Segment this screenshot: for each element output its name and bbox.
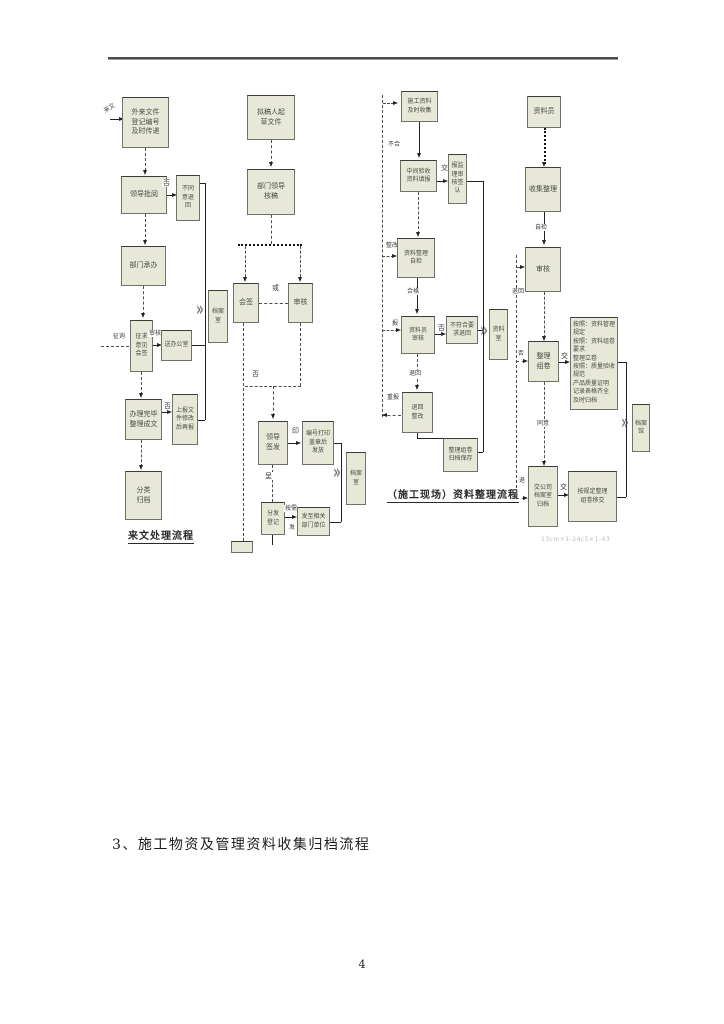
b-label-cheng: 呈 [264,472,273,480]
a-arrowhead [139,465,143,470]
c-connector [478,452,483,453]
header-rule [108,57,618,60]
d-arrowhead [523,496,528,500]
a-box-to-office: 送办公室 [161,330,192,361]
b-connector [271,215,272,244]
d-label-tui: 退 [518,477,526,484]
c-arrowhead [415,309,419,314]
b-box-dept-check: 部门领导 核稿 [247,169,295,215]
b-box-archive: 档案 室 [346,452,366,505]
d-arrowhead [542,240,546,245]
a-box-leader-review: 领导批阅 [121,176,167,214]
b-connector [259,303,288,304]
c-connector [467,181,483,182]
b-connector [243,323,244,541]
a-box-incoming: 外来文件 登记编号 及时传递 [122,97,169,148]
a-chevron-icon: » [196,304,204,319]
d-box-dept-audit: 审核 [525,247,561,292]
b-box-proof: 审核 [288,283,313,323]
a-arrowhead [143,240,147,245]
b-collector-line [341,443,342,522]
d-connector [618,362,626,363]
a-box-resubmit: 上报文 件修改 后再报 [172,394,198,445]
b-arrowhead [298,277,302,282]
c-box-supervisor: 报监 理审 核签 认 [448,154,467,204]
a-box-consult-sign: 征求 意见 会签 [130,320,153,372]
d-label-fou: 否 [517,350,525,357]
b-box-draft: 拟稿人起 草文件 [247,95,295,140]
a-box-finish-doc: 办理完毕 整理成文 [125,399,162,440]
b-connector [245,246,246,277]
b-label-no: 否 [251,370,260,378]
b-arrowhead [271,414,275,419]
b-label-per-need: 按需 [284,505,298,512]
b-box-terminator [231,541,253,553]
a-collector-line [205,183,206,420]
b-label-fa: 发 [288,524,296,531]
b-connector [334,443,341,444]
c-box-self-check: 资料整理 自检 [397,238,435,278]
d-connector [617,497,626,498]
b-connector [330,522,341,523]
c-box-collect: 施工资料 及时收集 [401,91,438,122]
b-connector [238,244,302,246]
chart-a-caption: 来文处理流程 [128,527,194,544]
b-box-countersign: 会签 [233,283,259,323]
c-arrowhead [393,101,398,105]
a-connector [192,345,205,346]
c-box-mid-accept: 中间验收 资料填报 [400,160,437,192]
d-chevron-icon: » [621,417,629,432]
c-connector [419,122,420,155]
d-box-make-volume: 整理 组卷 [528,341,559,382]
a-connector [101,346,129,347]
c-arrowhead [415,385,419,390]
b-connector [272,465,273,502]
b-arrowhead [296,441,301,445]
d-label-self-check: 自检 [534,224,548,231]
b-connector [300,323,301,386]
b-arrowhead [269,162,273,167]
b-box-send-out: 发至相关 部门单位 [297,507,330,536]
a-connector [141,440,142,467]
c-label-qualified: 合格 [406,288,420,295]
d-label-return1: 退回 [511,288,525,295]
chart-c-caption: （施工现场）资料整理流程 [387,486,519,503]
b-connector [273,386,274,416]
tiny-footnote: 13cm×1-24c5×1-43 [541,536,610,543]
d-label-agree: 同意 [536,420,550,427]
d-connector [544,292,545,338]
a-arrowhead [141,313,145,318]
d-arrowhead [520,265,525,269]
b-box-sign-issue: 领导 签发 [258,421,288,465]
a-label-review: 审核 [148,330,162,337]
a-box-reject-return: 不同 意退 回 [176,175,200,221]
c-chevron-icon: » [480,325,488,340]
d-box-to-archive-room: 交公司 档案室 归档 [528,466,558,527]
a-connector [198,420,205,421]
c-connector [418,192,419,234]
c-label-unqualified: 不合 [387,141,401,148]
c-label-tuihui: 退回 [408,370,422,377]
a-connector [141,372,142,395]
b-connector [272,535,273,545]
c-arrowhead [396,328,401,332]
d-box-clerk: 资料员 [527,96,561,128]
a-label-consult: 征询 [112,333,126,340]
b-box-register: 分发 登记 [261,502,285,535]
c-arrowhead [417,153,421,158]
a-arrowhead [143,170,147,175]
c-box-nonconform: 不符合要 求退回 [446,316,478,344]
a-arrowhead [139,393,143,398]
c-box-return-fix: 退回 整改 [402,392,433,433]
d-box-collect: 收集整理 [525,167,561,212]
a-box-classify-file: 分类 归档 [125,471,162,520]
b-connector [271,140,272,164]
b-label-or: 或 [271,284,280,292]
a-connector [143,286,144,315]
c-box-clerk-check: 资料员 审核 [401,316,435,354]
d-arrowhead [523,359,528,363]
b-connector [300,246,301,277]
d-box-archive: 档案 馆 [632,404,650,452]
a-connector [145,148,146,171]
b-box-stamp-issue: 编号打印 盖章后 发放 [302,421,334,465]
c-label-chongbao: 重报 [386,394,400,401]
c-label-bao: 报 [391,320,399,327]
c-arrowhead [382,413,387,417]
b-chevron-icon: » [333,467,341,482]
d-box-requirements: 按照：资料管理规定 按照：资料组卷要求 整理立卷 按照：质量验收规范 产品质量证… [570,317,618,410]
c-arrowhead [416,232,420,237]
b-label-yin: 印 [291,427,300,435]
a-connector [145,214,146,242]
d-connector [544,128,546,164]
page-number: 4 [0,958,724,971]
a-box-archive: 档案 室 [208,290,228,343]
d-box-handover: 按规定整理 组卷移交 [568,471,617,522]
a-box-dept-handle: 部门承办 [121,246,166,286]
c-box-bind-file: 整理组卷 归档保存 [443,438,478,472]
document-page: 来文 外来文件 登记编号 及时传递 领导批阅 否 不同 意退 回 部门承办 征求… [0,0,724,1024]
section-heading: 3、施工物资及管理资料收集归档流程 [112,834,370,854]
b-arrowhead [243,277,247,282]
c-box-archive: 资料 室 [489,309,508,360]
d-label-jiao2: 交 [559,483,568,491]
a-label-no1: 否 [162,179,171,187]
a-source-note: 来文 [102,101,117,115]
c-collector-line [483,181,484,452]
